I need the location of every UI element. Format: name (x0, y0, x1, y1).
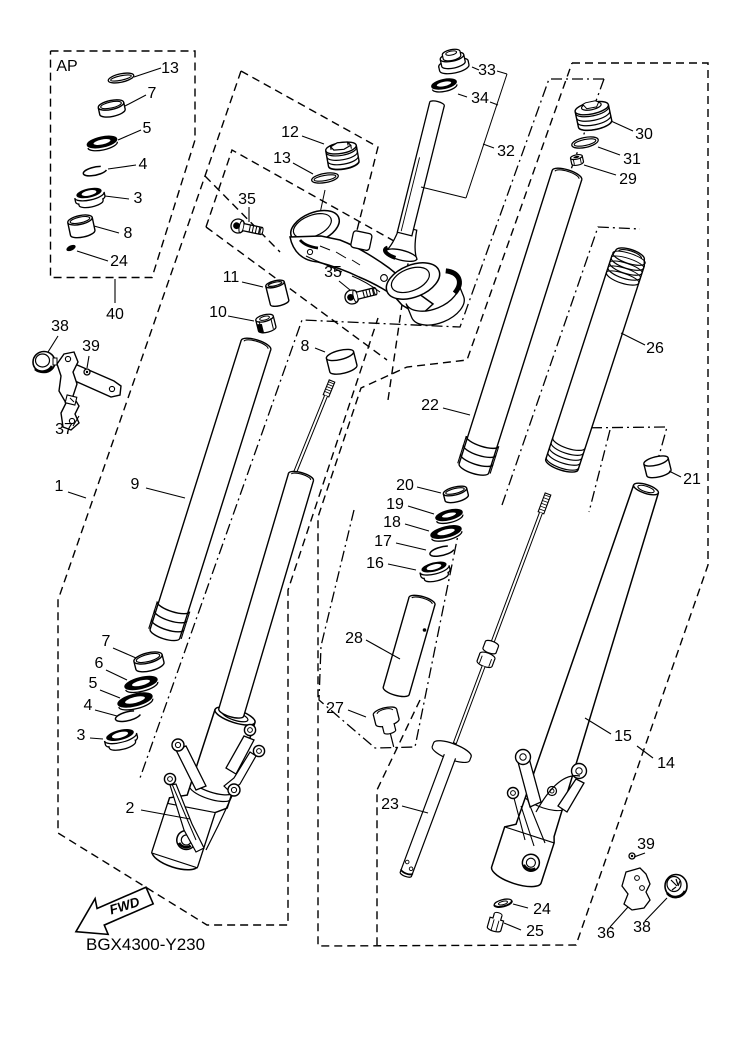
svg-text:3: 3 (134, 190, 143, 207)
svg-text:34: 34 (471, 90, 489, 107)
svg-text:13: 13 (161, 60, 179, 77)
svg-text:7: 7 (148, 85, 157, 102)
svg-text:7: 7 (102, 633, 111, 650)
svg-text:27: 27 (326, 700, 344, 717)
svg-text:8: 8 (301, 338, 310, 355)
svg-text:18: 18 (383, 514, 401, 531)
svg-text:39: 39 (82, 338, 100, 355)
svg-text:9: 9 (131, 476, 140, 493)
svg-text:6: 6 (95, 655, 104, 672)
svg-text:4: 4 (139, 156, 148, 173)
svg-text:33: 33 (478, 62, 496, 79)
svg-text:3: 3 (77, 727, 86, 744)
svg-text:31: 31 (623, 151, 641, 168)
svg-text:24: 24 (110, 253, 128, 270)
svg-text:40: 40 (106, 306, 124, 323)
svg-text:1: 1 (55, 478, 64, 495)
svg-text:4: 4 (84, 697, 93, 714)
svg-text:16: 16 (366, 555, 384, 572)
svg-text:14: 14 (657, 755, 675, 772)
svg-text:39: 39 (637, 836, 655, 853)
svg-text:19: 19 (386, 496, 404, 513)
svg-text:13: 13 (273, 150, 291, 167)
svg-text:35: 35 (238, 191, 256, 208)
svg-text:8: 8 (124, 225, 133, 242)
svg-text:37: 37 (55, 421, 73, 438)
svg-text:22: 22 (421, 397, 439, 414)
svg-text:2: 2 (126, 800, 135, 817)
svg-text:29: 29 (619, 171, 637, 188)
svg-text:32: 32 (497, 143, 515, 160)
svg-text:BGX4300-Y230: BGX4300-Y230 (86, 935, 205, 954)
svg-text:38: 38 (633, 919, 651, 936)
svg-text:5: 5 (143, 120, 152, 137)
svg-text:11: 11 (223, 269, 240, 286)
svg-text:AP: AP (56, 58, 77, 75)
svg-text:38: 38 (51, 318, 69, 335)
svg-text:21: 21 (683, 471, 701, 488)
svg-text:5: 5 (89, 675, 98, 692)
svg-text:10: 10 (209, 304, 227, 321)
svg-text:24: 24 (533, 901, 551, 918)
svg-text:28: 28 (345, 630, 363, 647)
svg-text:23: 23 (381, 796, 399, 813)
svg-text:35: 35 (324, 264, 342, 281)
svg-text:30: 30 (635, 126, 653, 143)
svg-text:20: 20 (396, 477, 414, 494)
svg-text:12: 12 (281, 124, 299, 141)
svg-text:15: 15 (614, 728, 632, 745)
svg-text:36: 36 (597, 925, 615, 942)
svg-text:26: 26 (646, 340, 664, 357)
svg-text:25: 25 (526, 923, 544, 940)
svg-text:17: 17 (374, 533, 392, 550)
